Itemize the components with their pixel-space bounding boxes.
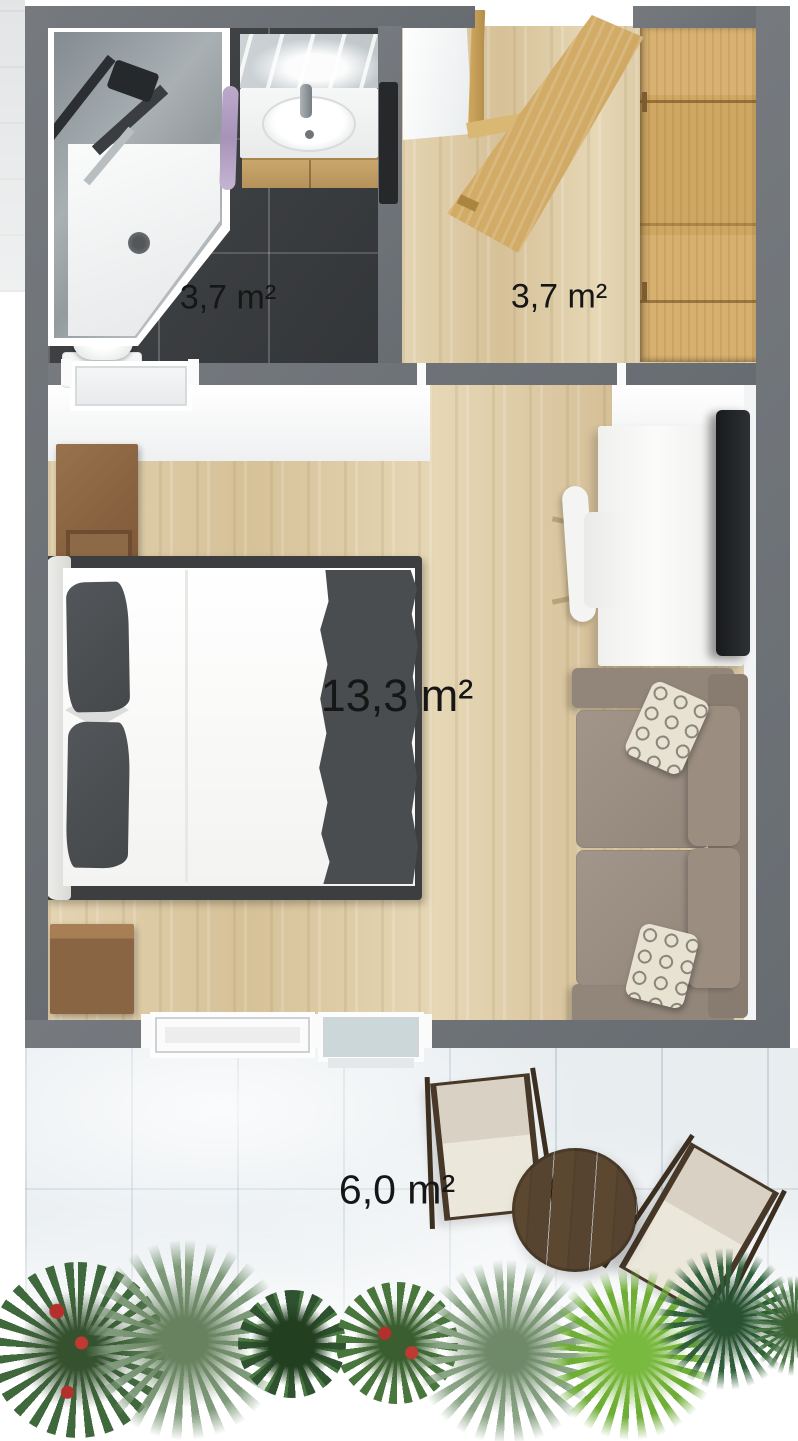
wall-right — [756, 6, 790, 1048]
wall-top — [25, 6, 475, 28]
round-table — [512, 1148, 638, 1272]
tv — [716, 410, 750, 656]
duvet-crease — [185, 570, 188, 882]
terrace-door-step — [328, 1058, 414, 1068]
bedroom-area-label: 13,3 m² — [321, 670, 474, 722]
double-bed — [45, 556, 422, 900]
door-jamb — [312, 1014, 323, 1048]
nightstand — [50, 924, 134, 1014]
shower-drain — [128, 232, 150, 254]
entry-door-jamb — [472, 10, 484, 132]
sofa-back-cushion — [688, 848, 740, 988]
wardrobe — [640, 28, 756, 362]
vanity-cabinet-seam — [309, 160, 311, 188]
exterior-tile-strip — [0, 0, 25, 292]
door-jamb — [188, 359, 199, 385]
desk-chair-seat — [584, 512, 638, 608]
wall-radiator — [379, 82, 398, 204]
bed-pillow — [66, 721, 131, 868]
hallway-area-label: 3,7 m² — [511, 278, 607, 317]
bed-runner — [315, 570, 419, 884]
bathroom-door-open — [403, 14, 473, 140]
door-jamb — [617, 363, 626, 385]
nightstand — [56, 444, 138, 564]
bathroom-mirror — [240, 34, 378, 88]
terrace-door — [318, 1012, 424, 1062]
sofa — [570, 666, 748, 1026]
bathroom-doorway — [70, 361, 192, 411]
door-jamb — [61, 359, 72, 385]
door-jamb — [141, 1014, 152, 1048]
floor-plan: 3,7 m² 3,7 m² 13,3 m² 6,0 m² — [0, 0, 798, 1441]
wall-left — [25, 6, 48, 1048]
door-jamb — [417, 363, 426, 385]
terrace-area-label: 6,0 m² — [339, 1167, 455, 1214]
bathroom-area-label: 3,7 m² — [180, 279, 276, 318]
plant-rosette — [238, 1290, 346, 1398]
bed-pillow — [66, 581, 130, 712]
sink-drain — [305, 130, 314, 139]
shower-head — [106, 59, 159, 103]
faucet — [300, 84, 312, 118]
window — [150, 1012, 315, 1058]
door-jamb — [421, 1014, 432, 1048]
